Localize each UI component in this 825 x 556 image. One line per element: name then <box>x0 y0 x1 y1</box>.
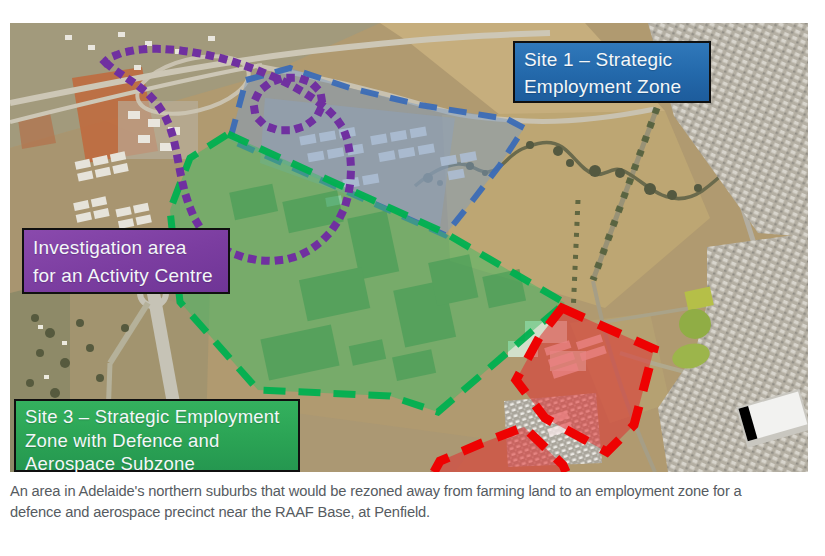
site3-zone-label: Site 3 – Strategic Employment Zone with … <box>14 399 300 472</box>
rezoning-map-figure: Site 1 – Strategic Employment Zone Inves… <box>0 0 825 556</box>
aerial-map: Site 1 – Strategic Employment Zone Inves… <box>10 23 808 472</box>
investigation-area-label: Investigation area for an Activity Centr… <box>22 228 230 294</box>
site1-zone-label: Site 1 – Strategic Employment Zone <box>513 41 711 103</box>
figure-caption: An area in Adelaide's northern suburbs t… <box>10 481 772 523</box>
